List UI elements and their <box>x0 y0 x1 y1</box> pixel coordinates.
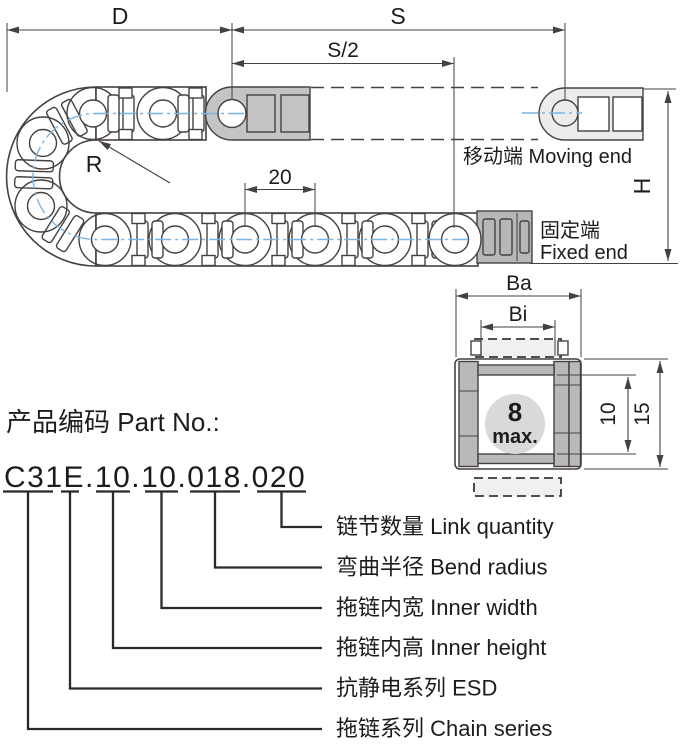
section-crossbar-top <box>478 365 554 375</box>
separator-top <box>474 339 561 357</box>
max-cable-value: 8 <box>508 397 522 427</box>
dim-label-10: 10 <box>597 402 620 425</box>
dim-label-H: H <box>629 178 655 195</box>
moving-end-label: 移动端 Moving end <box>463 145 632 168</box>
part-number-value: C31E.10.10.018.020 <box>4 461 306 494</box>
max-cable-unit: max. <box>492 426 538 448</box>
dim-label-15: 15 <box>631 402 654 425</box>
cross-section-view: 8 max. Ba Bi 10 15 <box>455 272 668 496</box>
callout-label-link-quantity: 链节数量 Link quantity <box>336 514 554 539</box>
radius-leader <box>99 141 170 183</box>
dim-label-Bi: Bi <box>509 303 528 326</box>
section-crossbar-bottom <box>478 454 554 464</box>
callout-label-inner-width: 拖链内宽 Inner width <box>336 595 538 620</box>
callout-label-bend-radius: 弯曲半径 Bend radius <box>336 555 548 580</box>
dim-label-S: S <box>390 3 405 29</box>
separator-bottom <box>474 478 561 496</box>
fixed-end-label-zh: 固定端 <box>540 219 600 242</box>
callout-label-esd: 抗静电系列 ESD <box>336 676 497 701</box>
fixed-end-label-en: Fixed end <box>540 242 628 264</box>
drag-chain-drawing-page: D S S/2 20 H R 移动端 Moving end 固定端 Fixed … <box>0 0 680 756</box>
dim-label-pitch: 20 <box>268 166 291 189</box>
callout-label-chain-series: 拖链系列 Chain series <box>336 716 552 741</box>
dim-label-Ba: Ba <box>506 272 532 295</box>
dim-label-S2: S/2 <box>327 39 359 62</box>
dim-label-R: R <box>86 151 103 177</box>
dim-label-D: D <box>112 3 129 29</box>
moving-end-bracket <box>539 88 643 140</box>
part-number-callout-lines <box>28 492 322 729</box>
part-number-heading: 产品编码 Part No.: <box>6 407 220 437</box>
callout-label-inner-height: 拖链内高 Inner height <box>336 635 546 660</box>
technical-drawing: D S S/2 20 H R 移动端 Moving end 固定端 Fixed … <box>0 0 680 756</box>
fixed-end-bracket <box>429 211 532 266</box>
